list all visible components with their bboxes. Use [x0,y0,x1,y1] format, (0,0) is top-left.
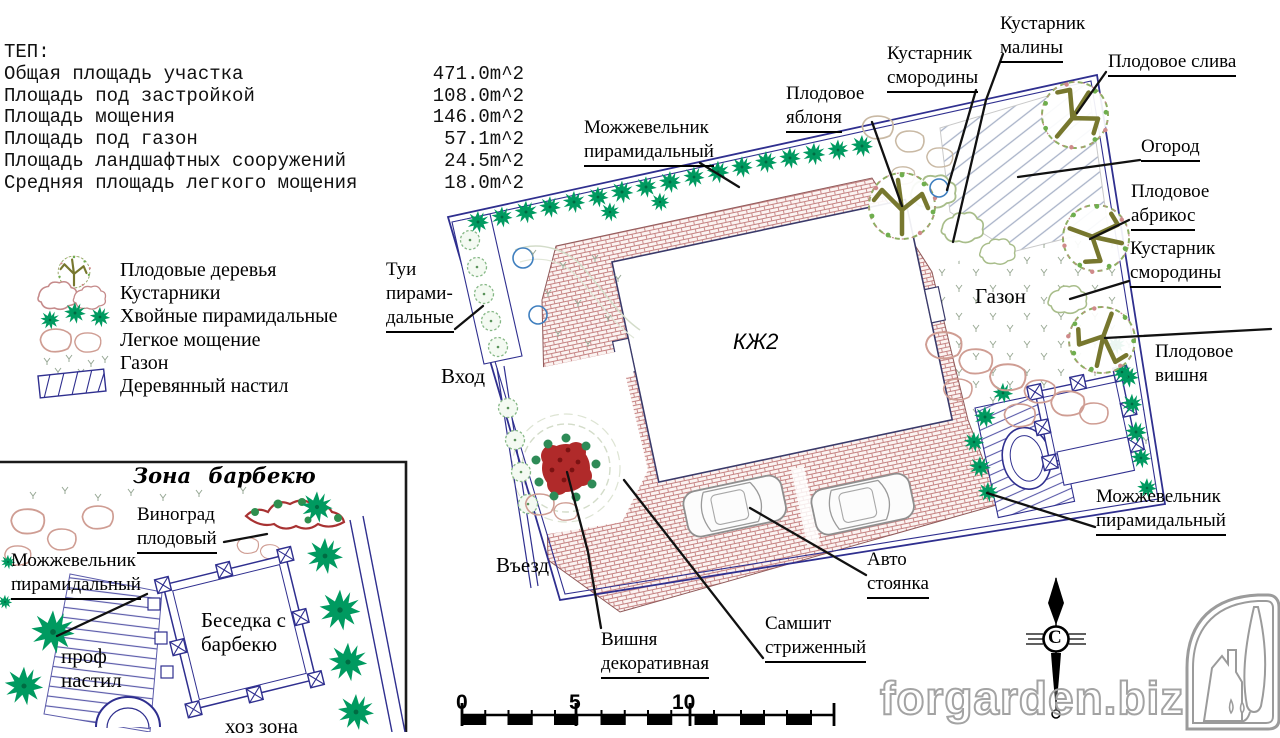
compass-north-letter: С [1048,627,1062,649]
label-parking: Авто стоянка [867,548,929,599]
scale-bar [462,703,834,726]
label-juniper-inset: Можжевельник пирамидальный [11,549,141,600]
tep-row: Средняя площадь легкого мощения18.0m^2 [4,173,524,195]
garden-plan-page: { "tep": { "title": "ТЕП:", "rows": [ {"… [0,0,1280,732]
tep-row: Площадь под застройкой108.0m^2 [4,86,524,108]
label-utility-zone: хоз зона [225,714,298,738]
label-cherry-fruit-tree: Плодовое вишня [1155,340,1233,388]
label-apple-tree: Плодовое яблоня [786,82,864,133]
inset-boundary [350,516,405,732]
light-paving-symbol [40,329,100,352]
label-deck-inset: проф настил [61,644,122,692]
label-decorative-cherry: Вишня декоративная [601,628,709,679]
label-lawn: Газон [975,284,1026,308]
label-plum-tree: Плодовое слива [1108,50,1236,77]
legend: Плодовые деревья Кустарники Хвойные пира… [120,259,337,398]
label-thuja: Туи пирами- дальные [386,258,454,333]
label-gazebo: Беседка с барбекю [201,608,286,656]
legend-item: Хвойные пирамидальные [120,305,337,328]
legend-item: Деревянный настил [120,375,337,398]
scale-tick-10: 10 [672,691,695,715]
scale-tick-5: 5 [569,691,581,715]
tep-title: ТЕП: [4,42,524,64]
legend-item: Плодовые деревья [120,259,337,282]
site-parameters-table: ТЕП: Общая площадь участка471.0m^2 Площа… [4,42,524,195]
label-currant-bush-right: Кустарник смородины [1130,237,1221,288]
label-raspberry-bush: Кустарник малины [1000,12,1085,63]
inset-title: Зона барбекю [133,463,316,488]
tep-row: Площадь под газон57.1m^2 [4,129,524,151]
label-juniper-bottom: Можжевельник пирамидальный [1096,485,1226,536]
label-currant-bush-top: Кустарник смородины [887,42,978,93]
label-apricot-tree: Плодовое абрикос [1131,180,1209,231]
label-juniper-top: Можжевельник пирамидальный [584,116,714,167]
deck-symbol [38,369,106,398]
label-vegetable-garden: Огород [1141,135,1200,162]
building-label: КЖ2 [733,330,778,354]
tep-row: Общая площадь участка471.0m^2 [4,64,524,86]
legend-item: Газон [120,352,337,375]
grape-vine [246,498,344,529]
compass-north-pointer [1048,577,1064,625]
tep-row: Площадь мощения146.0m^2 [4,107,524,129]
scale-tick-0: 0 [456,691,468,715]
plot [448,68,1165,612]
label-grape-vine: Виноград плодовый [137,503,217,554]
label-drive-entrance: Въезд [496,553,549,577]
watermark: forgarden.biz [880,671,1184,725]
tep-row: Площадь ландшафтных сооружений24.5m^2 [4,151,524,173]
legend-item: Кустарники [120,282,337,305]
legend-symbols [38,256,110,398]
forgarden-logo [1187,595,1279,729]
label-boxwood: Самшит стриженный [765,612,866,663]
label-entrance: Вход [441,364,485,388]
legend-item: Легкое мощение [120,329,337,352]
